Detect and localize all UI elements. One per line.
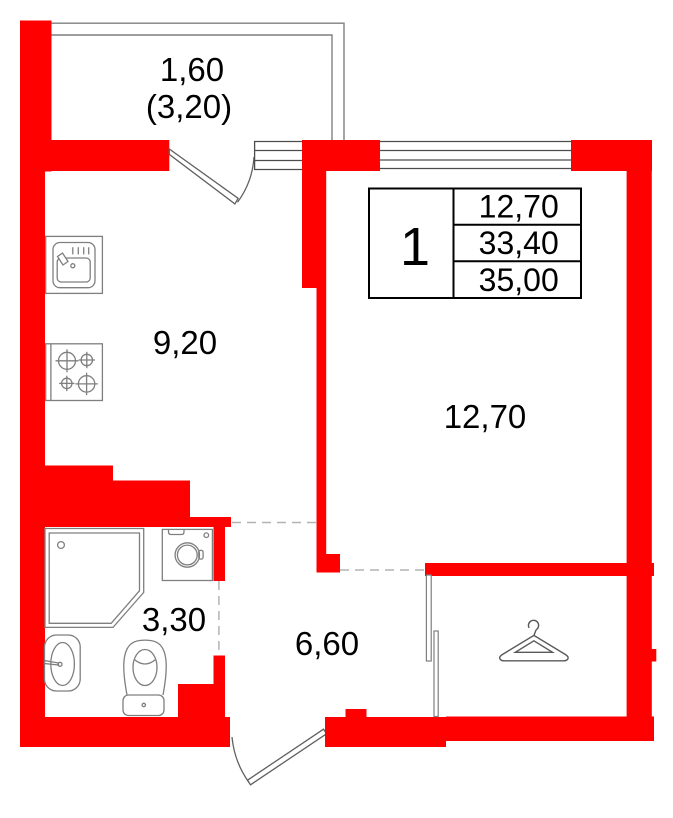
svg-text:3,30: 3,30 bbox=[142, 601, 206, 638]
svg-text:12,70: 12,70 bbox=[444, 398, 527, 435]
svg-text:33,40: 33,40 bbox=[479, 225, 559, 261]
svg-text:1: 1 bbox=[400, 217, 430, 277]
svg-text:12,70: 12,70 bbox=[479, 189, 559, 225]
svg-text:(3,20): (3,20) bbox=[146, 88, 232, 125]
svg-text:9,20: 9,20 bbox=[153, 324, 217, 361]
svg-text:1,60: 1,60 bbox=[160, 51, 224, 88]
svg-text:35,00: 35,00 bbox=[479, 262, 559, 298]
svg-text:6,60: 6,60 bbox=[295, 625, 359, 662]
